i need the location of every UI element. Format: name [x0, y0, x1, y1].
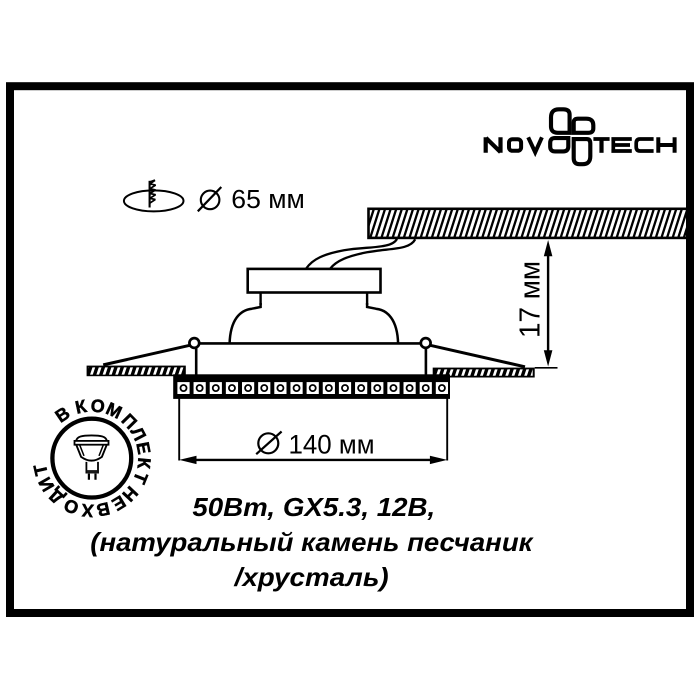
svg-text:17 мм: 17 мм	[515, 261, 547, 338]
svg-text:65 мм: 65 мм	[231, 186, 304, 214]
svg-text:(натуральный камень песчаник: (натуральный камень песчаник	[90, 527, 534, 557]
svg-text:/хрусталь): /хрусталь)	[234, 562, 389, 592]
svg-text:140 мм: 140 мм	[289, 430, 375, 460]
svg-text:50Вт, GX5.3, 12В,: 50Вт, GX5.3, 12В,	[192, 492, 435, 522]
svg-text:Х: Х	[81, 500, 95, 521]
